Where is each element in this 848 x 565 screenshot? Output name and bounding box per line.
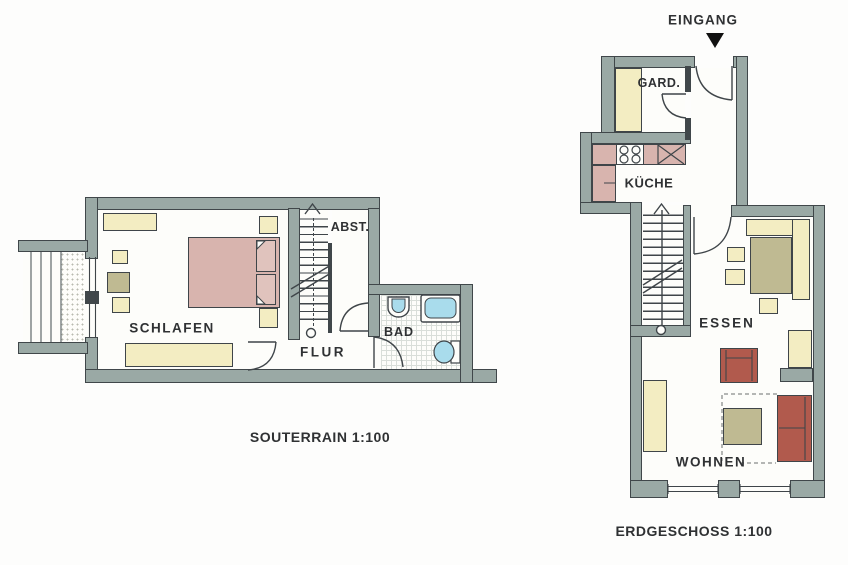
label-essen: ESSEN xyxy=(699,316,755,331)
pillow-fold xyxy=(257,241,265,304)
plan-linework xyxy=(0,0,848,565)
label-flur: FLUR xyxy=(300,345,346,360)
sink-symbol xyxy=(658,145,684,165)
window xyxy=(90,257,96,338)
label-abst: ABST. xyxy=(331,220,370,234)
door-arc xyxy=(248,66,732,370)
toilet xyxy=(434,341,460,363)
window xyxy=(668,484,790,494)
cooktop-burners xyxy=(620,146,640,163)
stair-direction xyxy=(291,204,331,338)
label-eingang: EINGANG xyxy=(668,13,738,28)
stair-direction xyxy=(643,204,682,335)
label-schlafen: SCHLAFEN xyxy=(129,321,215,336)
label-kueche: KÜCHE xyxy=(625,176,674,191)
floor-plan-page: EINGANG GARD. KÜCHE ESSEN WOHNEN ERDGESC… xyxy=(0,0,848,565)
label-wohnen: WOHNEN xyxy=(676,455,747,470)
entrance-arrow-icon xyxy=(706,33,724,48)
label-gard: GARD. xyxy=(638,76,681,90)
washbasin xyxy=(388,297,409,317)
label-bad: BAD xyxy=(384,325,414,339)
bathtub xyxy=(421,295,460,322)
terrace-steps xyxy=(31,252,61,342)
upholstery-lines xyxy=(726,350,805,460)
dashed-line xyxy=(722,394,777,463)
caption-erdgeschoss: ERDGESCHOSS 1:100 xyxy=(615,523,772,539)
caption-souterrain: SOUTERRAIN 1:100 xyxy=(250,429,390,445)
